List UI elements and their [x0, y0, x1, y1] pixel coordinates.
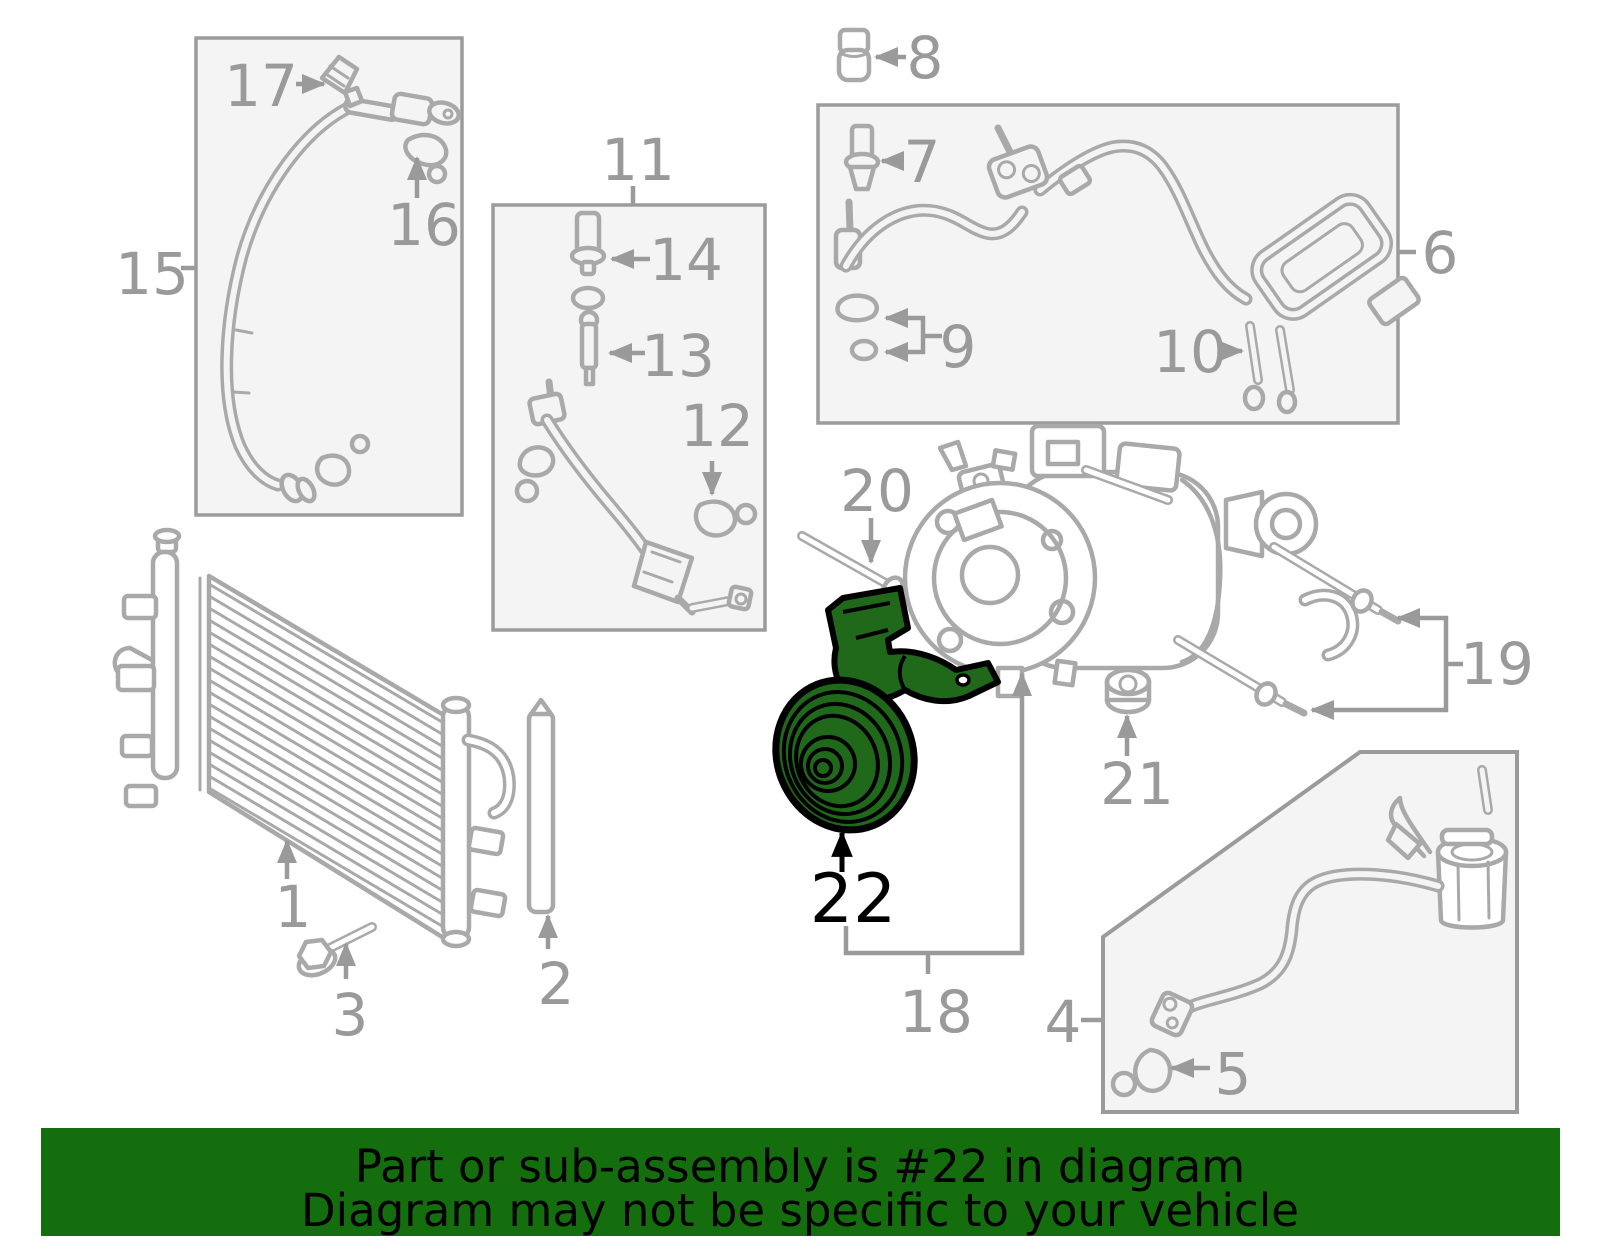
cap-8 — [839, 30, 869, 80]
compressor-body — [905, 426, 1353, 696]
callout-10: 10 — [1153, 318, 1227, 386]
callout-22: 22 — [810, 860, 897, 939]
callout-13: 13 — [641, 322, 715, 390]
parts-diagram-page: 17 16 15 — [0, 0, 1600, 1249]
callout-8: 8 — [907, 24, 944, 92]
callout-11: 11 — [601, 126, 675, 194]
subassembly-box-6: 7 9 10 6 — [818, 105, 1458, 423]
callout-7: 7 — [904, 128, 941, 196]
callout-6: 6 — [1422, 219, 1459, 287]
callout-17: 17 — [224, 52, 298, 120]
callout-15: 15 — [115, 240, 189, 308]
nut-21 — [1107, 670, 1149, 712]
info-banner: Part or sub-assembly is #22 in diagram D… — [41, 1128, 1560, 1237]
subassembly-box-15: 17 16 15 — [115, 38, 462, 515]
condenser-left-tank — [115, 530, 179, 806]
subassembly-box-11: 14 13 12 11 — [493, 126, 765, 630]
parts-diagram: 17 16 15 — [0, 0, 1600, 1249]
callout-16: 16 — [387, 191, 461, 259]
callout-20: 20 — [840, 457, 914, 525]
callout-5: 5 — [1215, 1040, 1252, 1108]
bracket-hole — [957, 675, 969, 685]
callout-19: 19 — [1460, 630, 1534, 698]
callout-2: 2 — [538, 950, 575, 1018]
callout-12: 12 — [680, 392, 754, 460]
drier-2 — [529, 700, 553, 912]
callout-9: 9 — [940, 313, 977, 381]
clamp-bottom — [317, 456, 349, 485]
callout-21: 21 — [1100, 750, 1174, 818]
bracket-19 — [1312, 618, 1446, 710]
callout-1: 1 — [275, 873, 312, 941]
banner-line2: Diagram may not be specific to your vehi… — [301, 1184, 1299, 1237]
callout-3: 3 — [332, 981, 369, 1049]
callout-18: 18 — [899, 978, 973, 1046]
callout-14: 14 — [649, 226, 723, 294]
condenser-right-tank — [443, 698, 509, 946]
callout-4: 4 — [1045, 988, 1082, 1056]
